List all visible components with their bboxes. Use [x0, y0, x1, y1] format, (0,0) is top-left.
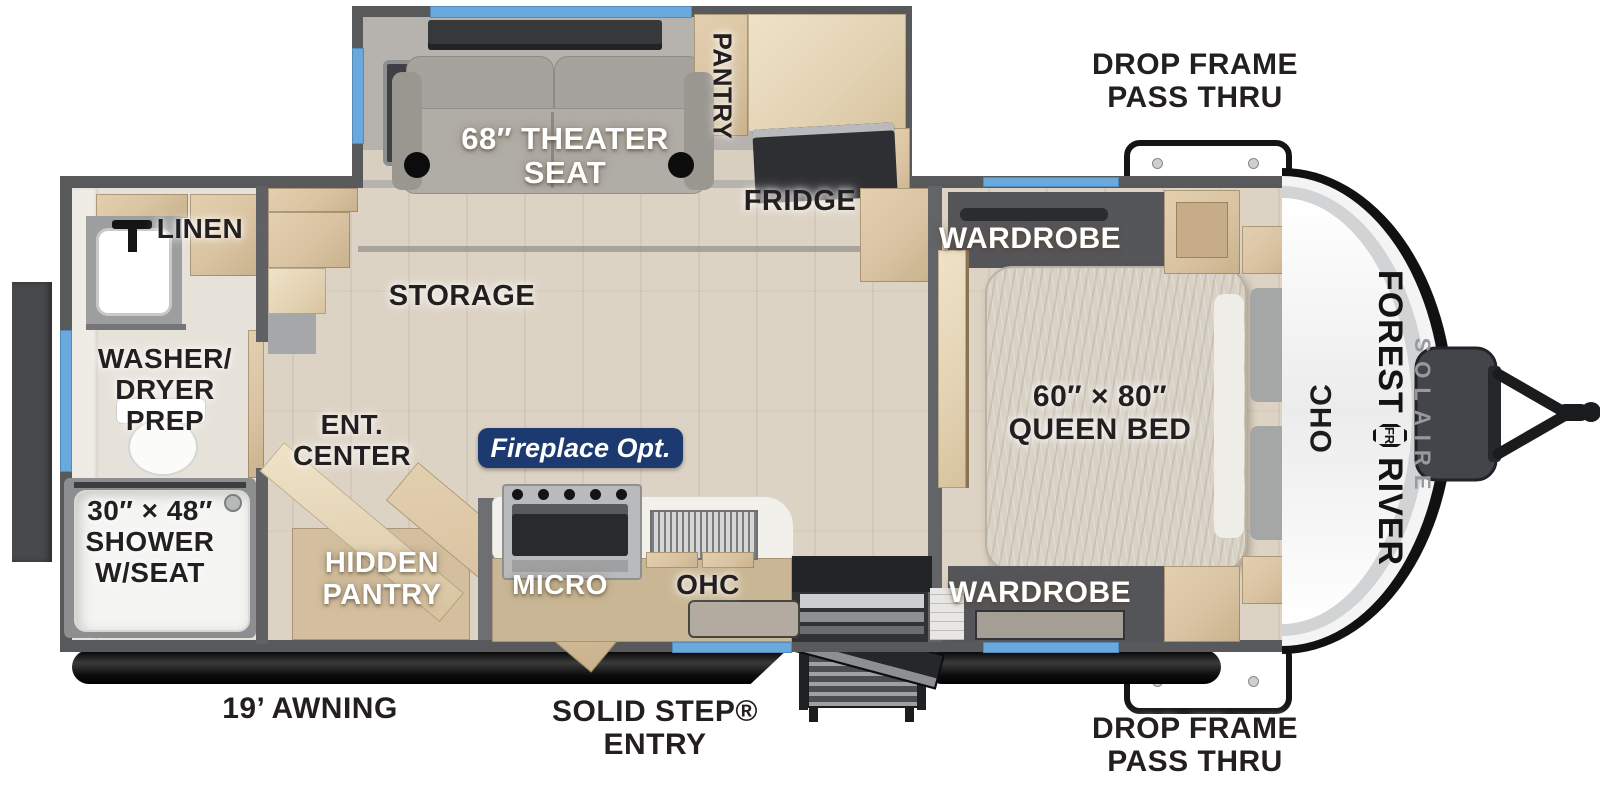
stove-knob-icon: [512, 489, 523, 500]
step-leg: [905, 706, 914, 722]
entry-well-shadow: [792, 556, 932, 592]
label-washer-dryer: WASHER/ DRYER PREP: [65, 344, 265, 436]
bedroom-bench: [1164, 566, 1240, 642]
label-shower: 30″ × 48″ SHOWER W/SEAT: [50, 496, 250, 588]
hitch-assembly: [1408, 338, 1600, 493]
slideout-window-left: [352, 48, 364, 144]
label-entry: SOLID STEP® ENTRY: [505, 695, 805, 761]
a-frame-arm: [1498, 374, 1564, 412]
counter-tray-left: [646, 552, 698, 568]
fireplace-option-badge: Fireplace Opt.: [478, 428, 683, 468]
stove-knob-icon: [616, 489, 627, 500]
storage-counter: [268, 314, 316, 354]
label-ent-center: ENT. CENTER: [252, 410, 452, 472]
stove-knob-icon: [538, 489, 549, 500]
label-drop-frame-bottom: DROP FRAME PASS THRU: [1045, 712, 1345, 778]
slide-seam-line: [358, 246, 906, 252]
brand-solaire: SOLAIRE: [1409, 338, 1435, 499]
bedroom-window-bottom: [983, 642, 1119, 653]
rear-bumper: [12, 282, 52, 562]
a-frame-arm: [1498, 416, 1564, 454]
brand-river: RIVER: [1371, 457, 1410, 566]
label-linen: LINEN: [100, 214, 300, 245]
solid-step: [795, 644, 930, 724]
screw-icon: [1248, 676, 1259, 687]
label-fridge: FRIDGE: [700, 186, 900, 218]
label-kitchen-ohc: OHC: [608, 570, 808, 601]
bath-wall-upper: [256, 186, 268, 342]
label-pantry: PANTRY: [708, 33, 737, 140]
label-hidden-pantry: HIDDEN PANTRY: [282, 548, 482, 612]
label-front-ohc: OHC: [1305, 383, 1339, 453]
awning-tube-left: [72, 650, 794, 684]
awning-tube-right: [935, 650, 1221, 684]
storage-upper-band: [268, 188, 358, 212]
oven-window: [512, 504, 628, 556]
label-theater-seat: 68″ THEATER SEAT: [415, 122, 715, 190]
label-drop-frame-top: DROP FRAME PASS THRU: [1045, 48, 1345, 114]
floorplan-scene: DROP FRAME PASS THRU DROP FRAME PASS THR…: [0, 0, 1600, 812]
slideout-window-top: [430, 6, 692, 18]
screw-icon: [1152, 158, 1163, 169]
bath-wall-lower: [256, 468, 268, 644]
forest-river-emblem-icon: FR: [1373, 424, 1407, 447]
forest-river-logo: FOREST FR RIVER: [1367, 273, 1413, 563]
tv: [428, 20, 662, 50]
stove-knob-icon: [590, 489, 601, 500]
label-storage: STORAGE: [362, 281, 562, 313]
fridge-cabinet: [748, 14, 906, 132]
label-front-ohc-wrap: OHC: [1302, 368, 1342, 468]
bedroom-window-top: [983, 177, 1119, 187]
label-pantry-wrap: PANTRY: [705, 19, 741, 154]
brand-forest: FOREST: [1371, 270, 1410, 414]
step-leg: [809, 706, 818, 722]
screw-icon: [1248, 158, 1259, 169]
bedroom-sliding-door: [938, 250, 969, 488]
fireplace-option-label: Fireplace Opt.: [490, 433, 670, 464]
storage-cabinet-2: [268, 268, 326, 314]
wardrobe-top-cabinet-panel: [1176, 202, 1228, 258]
shower-glass-edge: [74, 482, 246, 488]
label-wardrobe-bottom: WARDROBE: [915, 576, 1165, 609]
entry-tread-3: [800, 626, 924, 634]
vanity-divider: [86, 324, 186, 330]
label-queen-bed: 60″ × 80″ QUEEN BED: [975, 380, 1225, 446]
kitchen-window: [672, 642, 792, 653]
label-wardrobe-top: WARDROBE: [905, 222, 1155, 255]
brand-solaire-wrap: SOLAIRE: [1408, 333, 1436, 503]
stove-knob-icon: [564, 489, 575, 500]
wardrobe-rod: [960, 208, 1108, 221]
entry-tread-2: [800, 612, 924, 622]
wall-top-left: [60, 176, 363, 188]
wardrobe-bottom-tray: [975, 610, 1125, 640]
counter-tray-right: [702, 552, 754, 568]
counter-sink-tray: [688, 600, 800, 638]
label-awning: 19’ AWNING: [160, 692, 460, 725]
entry-tread-1: [800, 594, 924, 608]
